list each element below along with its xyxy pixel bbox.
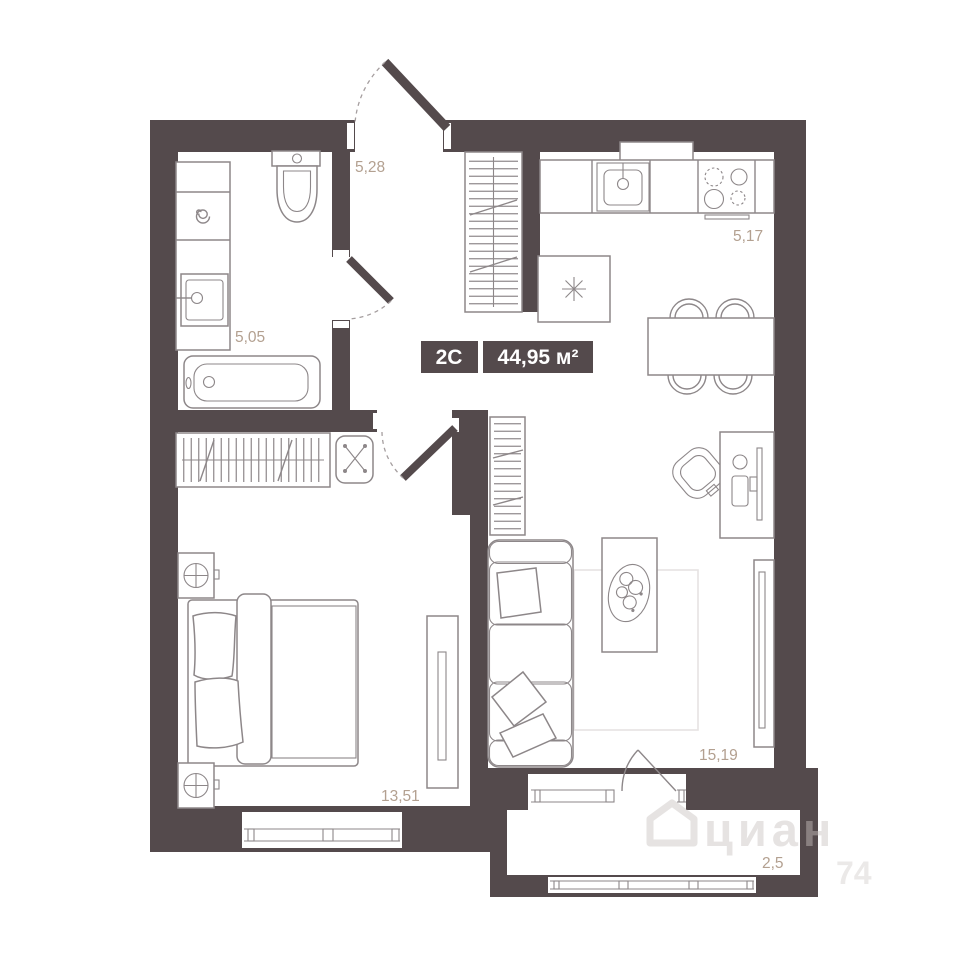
toilet: [272, 151, 320, 222]
entrance-door: [355, 62, 447, 128]
bedroom-wardrobe: [176, 433, 330, 487]
living-room-area-label: 15,19: [699, 747, 738, 764]
bedroom: [176, 433, 458, 808]
pillow: [193, 613, 236, 680]
desk: [667, 432, 774, 538]
bedside-stool: [336, 436, 373, 483]
fridge-spot: [538, 256, 610, 322]
door-jamb-ticks: [333, 123, 459, 432]
wash-basin: [176, 274, 228, 326]
bathroom-door: [349, 259, 391, 319]
balcony-window: [548, 877, 756, 893]
bathroom-area-label: 5,05: [235, 329, 265, 346]
bathroom: [176, 151, 320, 408]
floor-plan: 5,28 5,05 5,17 13,51 15,19 2,5 2С 44,95 …: [0, 0, 960, 960]
dining-table: [648, 299, 774, 394]
apartment-type-label: 2С: [436, 346, 463, 369]
balcony-area-label: 2,5: [762, 855, 784, 872]
floor-plan-page: 5,28 5,05 5,17 13,51 15,19 2,5 2С 44,95 …: [0, 0, 960, 960]
vent-shaft: [620, 142, 693, 161]
nightstand-upper: [178, 553, 219, 598]
pillow: [195, 678, 243, 748]
hallway: [465, 152, 522, 312]
pillow: [497, 568, 541, 618]
hallway-area-label: 5,28: [355, 159, 385, 176]
living-room: [488, 417, 774, 767]
bedroom-tv-stand: [427, 616, 458, 788]
fridge-star-icon: [562, 277, 586, 301]
dining-chair: [714, 375, 752, 394]
hallway-wardrobe: [465, 152, 522, 312]
bedroom-window: [242, 812, 402, 848]
living-room-window: [528, 774, 686, 810]
watermark-digits: 74: [836, 855, 872, 891]
dining-chair: [668, 375, 706, 394]
kitchen-area-label: 5,17: [733, 228, 763, 245]
dining-chair: [670, 299, 708, 318]
nightstand-lower: [178, 763, 219, 808]
dining-chair: [716, 299, 754, 318]
bathtub: [184, 356, 320, 408]
living-tv-stand: [754, 560, 774, 747]
title-badge: 2С 44,95 м²: [421, 341, 593, 373]
apartment-area-label: 44,95 м²: [498, 346, 579, 369]
sofa: [488, 540, 573, 767]
bookshelf: [490, 417, 525, 535]
bedroom-area-label: 13,51: [381, 788, 420, 805]
watermark-brand: циан: [704, 803, 836, 856]
bed: [188, 594, 358, 766]
bedroom-door: [382, 428, 455, 478]
coffee-table: [602, 538, 657, 652]
